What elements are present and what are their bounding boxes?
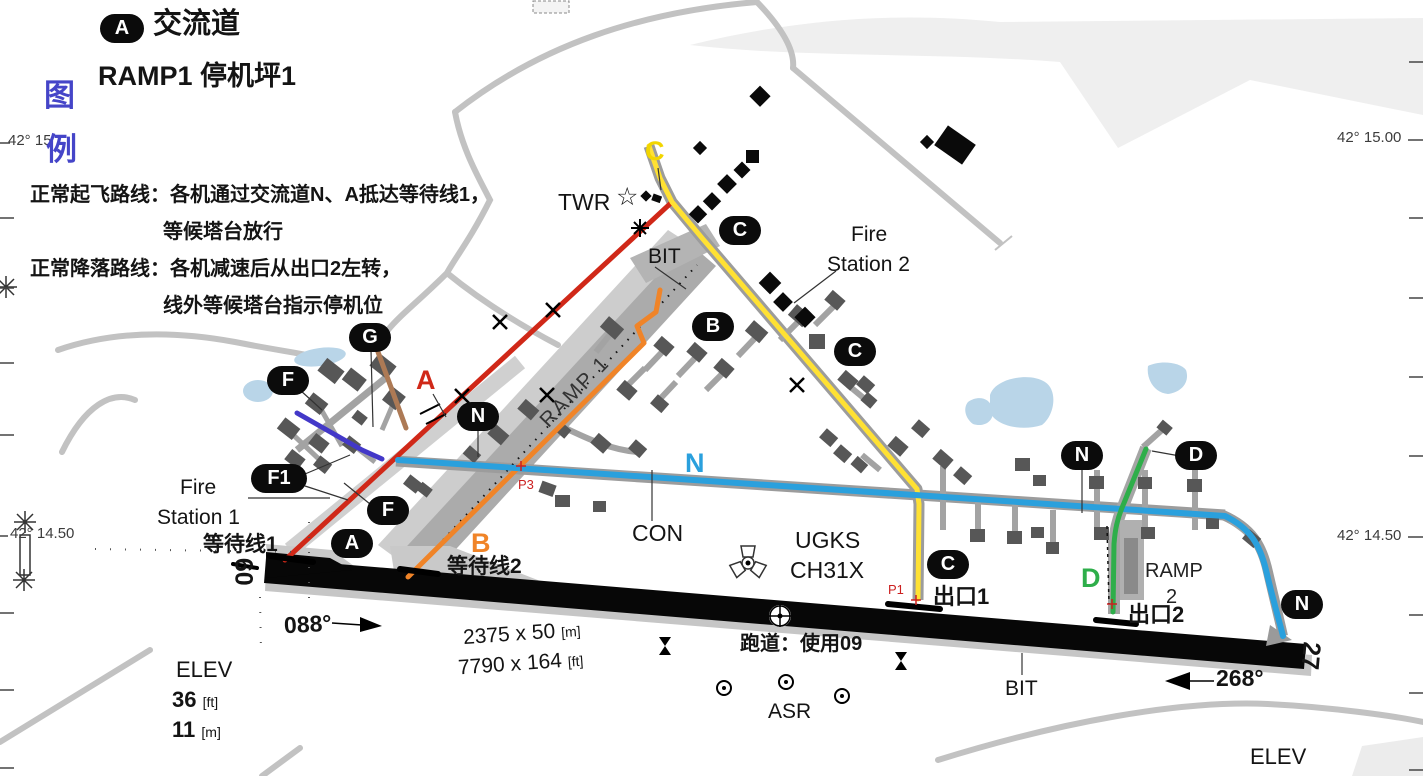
route-letter-b: B xyxy=(471,528,491,559)
taxiway-badge-n-left: N xyxy=(457,402,499,431)
ramp2-label-line1: RAMP xyxy=(1145,560,1203,582)
note-takeoff-line2: 等候塔台放行 xyxy=(163,221,283,243)
legend-ramp-term: RAMP1 停机坪1 xyxy=(98,62,296,92)
light-circle-icon xyxy=(717,675,849,703)
coordinate-top-left: 42° 15.00 xyxy=(8,133,50,150)
elevation-m: 11 [m] xyxy=(172,718,221,742)
runway-threshold-27: 27 xyxy=(1295,641,1325,671)
runway-threshold-09: 09 xyxy=(232,558,260,586)
fire-station2-line2: Station 2 xyxy=(827,253,910,276)
taxiway-badge-g: G xyxy=(349,323,391,352)
asr-label: ASR xyxy=(768,700,811,723)
taxiway-badge-c-top: C xyxy=(719,216,761,245)
coordinate-top-right: 42° 15.00 xyxy=(1337,130,1401,147)
exit1-label: 出口1 xyxy=(933,585,989,609)
heading-arrow-east xyxy=(332,617,382,632)
legend-taxiway-term: 交流道 xyxy=(153,9,240,41)
note-landing-line1: 正常降落路线：各机减速后从出口2左转， xyxy=(30,258,401,280)
taxiway-badge-n-right: N xyxy=(1281,590,1323,619)
legend-char-top: 图 xyxy=(44,70,75,115)
point-p1-label: P1 xyxy=(888,583,904,597)
heading-arrow-west xyxy=(1165,672,1214,690)
legend-char-bottom: 例 xyxy=(46,124,77,169)
fire-station2-line1: Fire xyxy=(851,223,887,246)
route-letter-n: N xyxy=(685,448,705,479)
taxiway-badge-c-mid: C xyxy=(834,337,876,366)
fire-station1-line1: Fire xyxy=(180,476,216,499)
ponds xyxy=(243,344,1187,427)
note-landing-line2: 线外等候塔台指示停机位 xyxy=(163,295,383,317)
dashed-building xyxy=(533,1,569,13)
runway-heading-east: 088° xyxy=(283,611,332,639)
coordinate-mid-right: 42° 14.50 xyxy=(1337,528,1401,545)
route-letter-c: C xyxy=(645,136,665,167)
con-surface-label: CON xyxy=(632,521,683,546)
taxiway-badge-a: A xyxy=(331,529,373,558)
taxiway-badge-f-lower: F xyxy=(367,496,409,525)
legend-taxiway-badge: A xyxy=(100,14,144,43)
tower-star-icon: ☆ xyxy=(616,184,638,212)
signal-area-icon xyxy=(730,546,766,578)
tower-label: TWR xyxy=(558,190,610,215)
elevation-corner-label: ELEV xyxy=(1250,745,1306,769)
airport-freq-label: CH31X xyxy=(790,558,864,583)
airport-diagram: A 交流道 RAMP1 停机坪1 42° 15.00 图 例 正常起飞路线：各机… xyxy=(0,0,1423,776)
fire-station1-line2: Station 1 xyxy=(157,506,240,529)
route-letter-a: A xyxy=(416,365,436,396)
coordinate-mid-left: 42° 14.50 xyxy=(10,526,74,543)
exit2-label: 出口2 xyxy=(1128,603,1184,627)
taxiway-badge-c-exit: C xyxy=(927,550,969,579)
hold-line1-label: 等待线1 xyxy=(203,533,278,556)
route-letter-d: D xyxy=(1081,563,1101,594)
taxiway-badge-f-upper: F xyxy=(267,366,309,395)
runway-heading-west: 268° xyxy=(1216,666,1264,691)
point-p3-label: P3 xyxy=(518,478,534,492)
taxiway-badge-b: B xyxy=(692,312,734,341)
bit-taxiway-label: BIT xyxy=(648,245,681,268)
airport-code-label: UGKS xyxy=(795,528,860,553)
taxiway-badge-f1: F1 xyxy=(251,464,307,493)
aiming-point-icon xyxy=(769,605,791,627)
bit-runway-label: BIT xyxy=(1005,677,1038,700)
taxiway-badge-n-mid: N xyxy=(1061,441,1103,470)
elevation-ft: 36 [ft] xyxy=(172,688,218,712)
runway-in-use-label: 跑道：使用09 xyxy=(740,633,862,655)
beacon-icon xyxy=(0,276,36,591)
note-takeoff-line1: 正常起飞路线：各机通过交流道N、A抵达等待线1， xyxy=(30,184,490,206)
taxiway-badge-d: D xyxy=(1175,441,1217,470)
elevation-label: ELEV xyxy=(176,658,232,682)
